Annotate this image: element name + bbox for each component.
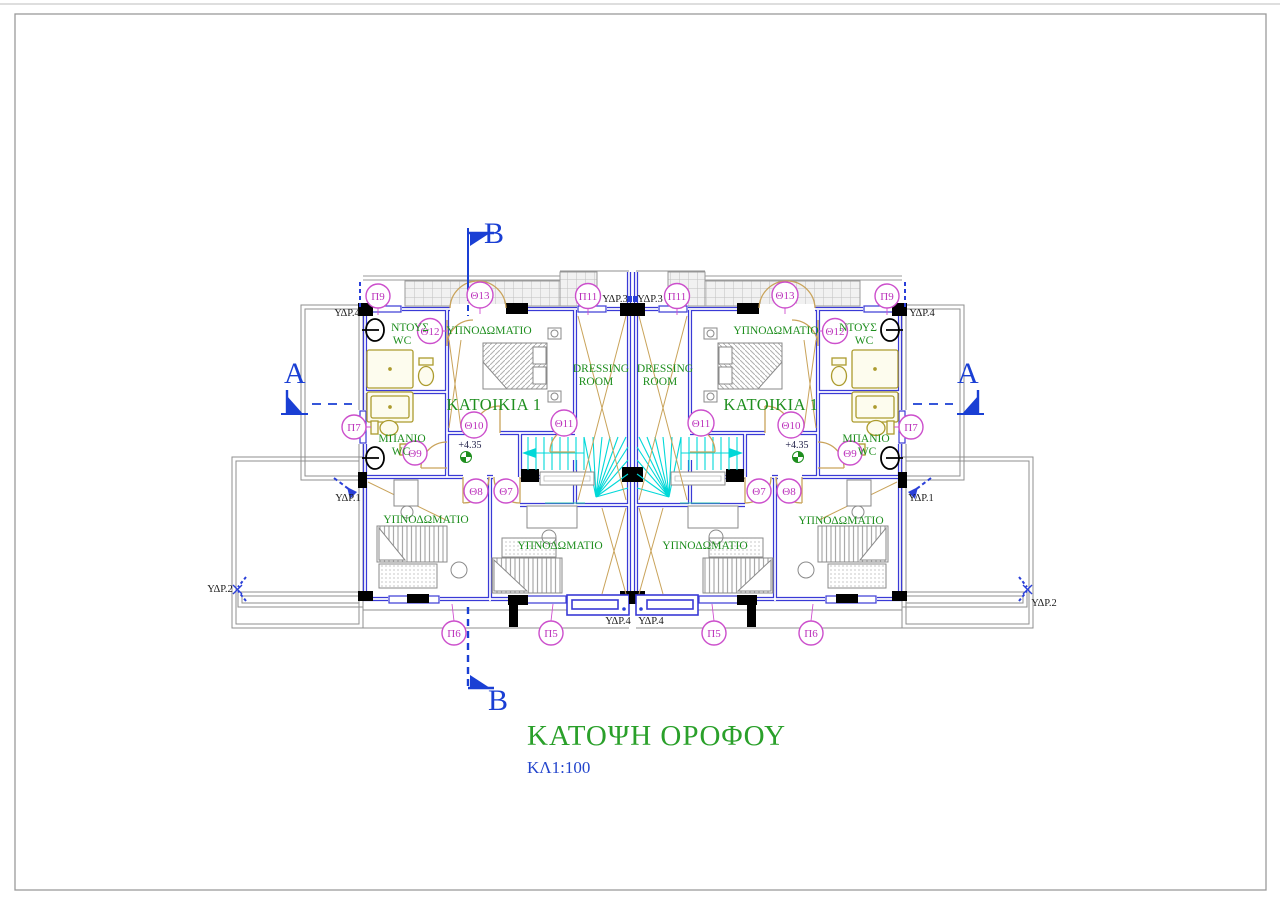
svg-text:Θ7: Θ7: [752, 486, 766, 498]
label-ydr4-bottom-left: ΥΔΡ.4: [605, 616, 631, 627]
label-ydr2-left: ΥΔΡ.2: [207, 584, 233, 595]
label-bath-left-1: ΜΠΑΝΙΟ: [378, 433, 425, 445]
tag-th7-left: Θ7: [494, 479, 518, 503]
section-label-b-bottom: B: [488, 684, 508, 717]
drawing-scale: ΚΛ1:100: [527, 758, 590, 777]
tag-p9-left: Π9: [366, 284, 390, 308]
tag-p5-left: Π5: [539, 621, 563, 645]
tag-th11-left: Θ11: [551, 410, 577, 436]
label-dressing-right-1: DRESSING: [637, 363, 693, 375]
label-ydr4-top-left: ΥΔΡ.4: [334, 308, 360, 319]
svg-text:Π7: Π7: [347, 422, 361, 434]
tag-th10-left: Θ10: [461, 412, 487, 438]
label-bath-right-2: WC: [858, 446, 877, 458]
label-bath-right-1: ΜΠΑΝΙΟ: [842, 433, 889, 445]
svg-text:Θ10: Θ10: [782, 420, 801, 432]
tag-p6-left: Π6: [442, 621, 466, 645]
label-dressing-right-2: ROOM: [643, 376, 678, 388]
tag-th11-right: Θ11: [688, 410, 714, 436]
svg-text:Π11: Π11: [668, 291, 687, 303]
tag-p5-right: Π5: [702, 621, 726, 645]
label-ydr1-left: ΥΔΡ.1: [335, 493, 361, 504]
floor-plan-drawing: B B A A Π9 Θ13 Π11 Π11 Θ13 Π9 Θ12 Θ12 Π7…: [0, 0, 1280, 904]
svg-text:Π9: Π9: [880, 291, 894, 303]
label-ydr4-bottom-right: ΥΔΡ.4: [638, 616, 664, 627]
label-bath-left-2: WC: [392, 446, 411, 458]
svg-text:Θ7: Θ7: [499, 486, 513, 498]
svg-text:Π11: Π11: [579, 291, 598, 303]
label-bedroom-ul: ΥΠΝΟΔΩΜΑΤΙΟ: [446, 325, 531, 337]
tag-p7-left: Π7: [342, 415, 366, 439]
level-marker-left: +4.35: [458, 440, 481, 463]
tag-p11-right: Π11: [665, 284, 690, 309]
label-bedroom-ur: ΥΠΝΟΔΩΜΑΤΙΟ: [733, 325, 818, 337]
section-marker-a-right: [913, 390, 984, 414]
label-shower-left-2: WC: [393, 335, 412, 347]
label-unit-left: ΚΑΤΟΙΚΙΑ 1: [446, 395, 541, 414]
label-shower-left-1: ΝΤΟΥΣ: [391, 322, 429, 334]
tag-p9-right: Π9: [875, 284, 899, 308]
label-bedroom-lml: ΥΠΝΟΔΩΜΑΤΙΟ: [517, 540, 602, 552]
section-marker-a-left: [281, 390, 352, 414]
label-bedroom-lmr: ΥΠΝΟΔΩΜΑΤΙΟ: [662, 540, 747, 552]
tag-th13-left: Θ13: [467, 282, 493, 308]
svg-text:Π6: Π6: [447, 628, 461, 640]
label-ydr4-top-right: ΥΔΡ.4: [909, 308, 935, 319]
tag-th8-left: Θ8: [464, 479, 488, 503]
section-label-a-right: A: [957, 357, 979, 390]
label-ydr3-left: ΥΔΡ.3: [602, 294, 628, 305]
svg-text:Θ10: Θ10: [465, 420, 484, 432]
svg-text:Θ9: Θ9: [408, 448, 422, 460]
svg-text:Θ13: Θ13: [471, 290, 490, 302]
label-ydr2-right: ΥΔΡ.2: [1031, 598, 1057, 609]
svg-text:Π5: Π5: [544, 628, 558, 640]
label-bedroom-ll: ΥΠΝΟΔΩΜΑΤΙΟ: [383, 514, 468, 526]
label-dressing-left-1: DRESSING: [573, 363, 629, 375]
section-label-a-left: A: [284, 357, 306, 390]
tag-p6-right: Π6: [799, 621, 823, 645]
drawing-sheet: B B A A Π9 Θ13 Π11 Π11 Θ13 Π9 Θ12 Θ12 Π7…: [0, 0, 1280, 904]
svg-text:Π9: Π9: [371, 291, 385, 303]
level-marker-right: +4.35: [785, 440, 808, 463]
label-dressing-left-2: ROOM: [579, 376, 614, 388]
section-marker-b-bottom: [468, 607, 494, 688]
level-value-right: +4.35: [785, 440, 808, 451]
drawing-title: ΚΑΤΟΨΗ ΟΡΟΦΟΥ: [527, 720, 786, 752]
tag-th10-right: Θ10: [778, 412, 804, 438]
svg-text:Π6: Π6: [804, 628, 818, 640]
svg-text:Θ11: Θ11: [692, 418, 711, 430]
label-ydr3-right: ΥΔΡ.3: [637, 294, 663, 305]
tag-th13-right: Θ13: [772, 282, 798, 308]
tag-th7-right: Θ7: [747, 479, 771, 503]
label-shower-right-2: WC: [855, 335, 874, 347]
level-value-left: +4.35: [458, 440, 481, 451]
svg-text:Π7: Π7: [904, 422, 918, 434]
svg-text:Θ13: Θ13: [776, 290, 795, 302]
tag-p7-right: Π7: [899, 415, 923, 439]
tags-layer: Π9 Θ13 Π11 Π11 Θ13 Π9 Θ12 Θ12 Π7 Π7 Θ10 …: [342, 282, 923, 645]
label-ydr1-right: ΥΔΡ.1: [908, 493, 934, 504]
title-block: ΚΑΤΟΨΗ ΟΡΟΦΟΥ ΚΛ1:100: [527, 720, 786, 777]
label-shower-right-1: ΝΤΟΥΣ: [839, 322, 877, 334]
tag-th8-right: Θ8: [777, 479, 801, 503]
section-label-b-top: B: [484, 217, 504, 250]
label-unit-right: ΚΑΤΟΙΚΙΑ 1: [723, 395, 818, 414]
sheet-frame: [0, 4, 1280, 890]
svg-text:Θ9: Θ9: [843, 448, 857, 460]
svg-text:Θ8: Θ8: [469, 486, 483, 498]
svg-text:Θ11: Θ11: [555, 418, 574, 430]
svg-text:Π5: Π5: [707, 628, 721, 640]
label-bedroom-lr: ΥΠΝΟΔΩΜΑΤΙΟ: [798, 515, 883, 527]
svg-text:Θ8: Θ8: [782, 486, 796, 498]
tag-p11-left: Π11: [576, 284, 601, 309]
